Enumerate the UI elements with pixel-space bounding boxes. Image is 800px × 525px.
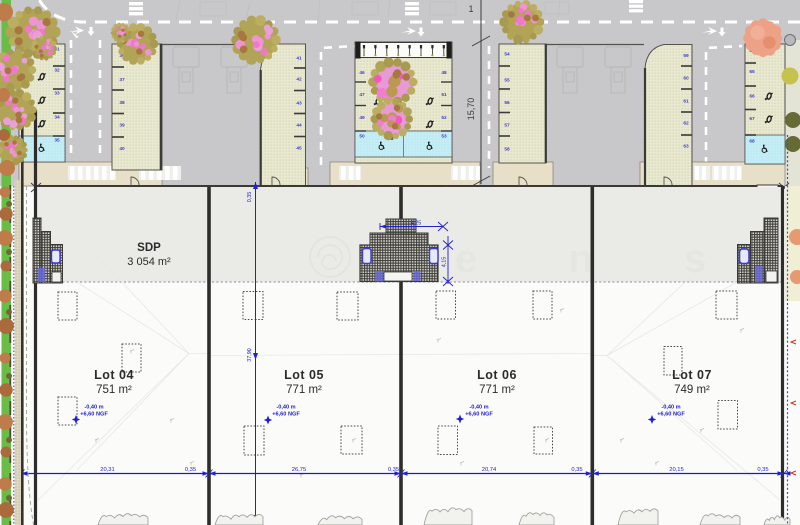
svg-text:66: 66 xyxy=(749,93,755,99)
svg-text:Lot 04: Lot 04 xyxy=(94,368,134,382)
svg-text:60: 60 xyxy=(683,75,689,81)
svg-text:3 054 m²: 3 054 m² xyxy=(127,256,171,268)
svg-text:0,35: 0,35 xyxy=(185,467,196,473)
svg-text:34: 34 xyxy=(54,114,60,120)
svg-text:62: 62 xyxy=(683,120,689,126)
svg-text:67: 67 xyxy=(749,116,755,122)
svg-text:SDP: SDP xyxy=(137,242,161,254)
svg-text:Lot 07: Lot 07 xyxy=(672,368,712,382)
svg-text:751 m²: 751 m² xyxy=(96,384,132,396)
svg-text:49: 49 xyxy=(359,115,365,121)
svg-text:0,35: 0,35 xyxy=(571,467,582,473)
svg-text:48: 48 xyxy=(441,70,447,76)
svg-text:50: 50 xyxy=(359,134,365,140)
svg-text:+6,60 NGF: +6,60 NGF xyxy=(465,412,493,418)
svg-text:-0,40 m: -0,40 m xyxy=(276,405,295,411)
svg-text:41: 41 xyxy=(296,55,302,61)
svg-text:53: 53 xyxy=(441,134,447,140)
svg-text:749 m²: 749 m² xyxy=(674,384,710,396)
svg-text:32: 32 xyxy=(54,67,60,73)
svg-text:44: 44 xyxy=(296,122,302,128)
svg-text:0,35: 0,35 xyxy=(388,467,399,473)
svg-text:+6,60 NGF: +6,60 NGF xyxy=(657,412,685,418)
svg-text:15,70: 15,70 xyxy=(466,98,476,121)
svg-text:35: 35 xyxy=(54,137,60,143)
svg-text:-0,40 m: -0,40 m xyxy=(661,405,680,411)
svg-text:771 m²: 771 m² xyxy=(286,384,322,396)
svg-text:68: 68 xyxy=(749,138,755,144)
svg-text:+6,60 NGF: +6,60 NGF xyxy=(272,412,300,418)
svg-text:54: 54 xyxy=(504,51,510,57)
svg-text:20,31: 20,31 xyxy=(100,467,115,473)
svg-text:37,90: 37,90 xyxy=(247,348,253,362)
svg-text:61: 61 xyxy=(683,98,689,104)
svg-text:20,74: 20,74 xyxy=(482,467,497,473)
svg-text:43: 43 xyxy=(296,100,302,106)
svg-text:-0,40 m: -0,40 m xyxy=(469,405,488,411)
svg-text:0,35: 0,35 xyxy=(247,192,253,203)
svg-text:4,25: 4,25 xyxy=(411,221,422,227)
svg-text:58: 58 xyxy=(504,146,510,152)
svg-text:771 m²: 771 m² xyxy=(479,384,515,396)
svg-text:20,15: 20,15 xyxy=(669,467,684,473)
svg-text:0,35: 0,35 xyxy=(757,467,768,473)
svg-text:4,15: 4,15 xyxy=(442,257,448,268)
svg-text:-0,40 m: -0,40 m xyxy=(84,405,103,411)
svg-text:Lot 06: Lot 06 xyxy=(477,368,517,382)
svg-text:37: 37 xyxy=(119,77,125,83)
svg-text:38: 38 xyxy=(119,100,125,106)
svg-text:65: 65 xyxy=(749,69,755,75)
svg-text:42: 42 xyxy=(296,76,302,82)
svg-text:26,75: 26,75 xyxy=(292,467,307,473)
svg-text:Lot 05: Lot 05 xyxy=(284,368,324,382)
svg-text:52: 52 xyxy=(441,115,447,121)
svg-text:45: 45 xyxy=(296,145,302,151)
svg-text:63: 63 xyxy=(683,143,689,149)
svg-text:46: 46 xyxy=(359,70,365,76)
svg-text:57: 57 xyxy=(504,122,510,128)
svg-text:47: 47 xyxy=(359,92,365,98)
svg-text:56: 56 xyxy=(504,100,510,106)
svg-text:33: 33 xyxy=(54,90,60,96)
svg-text:55: 55 xyxy=(504,77,510,83)
svg-text:39: 39 xyxy=(119,122,125,128)
svg-text:51: 51 xyxy=(441,92,447,98)
svg-text:40: 40 xyxy=(119,146,125,152)
svg-text:1: 1 xyxy=(468,4,473,14)
svg-text:59: 59 xyxy=(683,53,689,59)
svg-text:+6,60 NGF: +6,60 NGF xyxy=(80,412,108,418)
